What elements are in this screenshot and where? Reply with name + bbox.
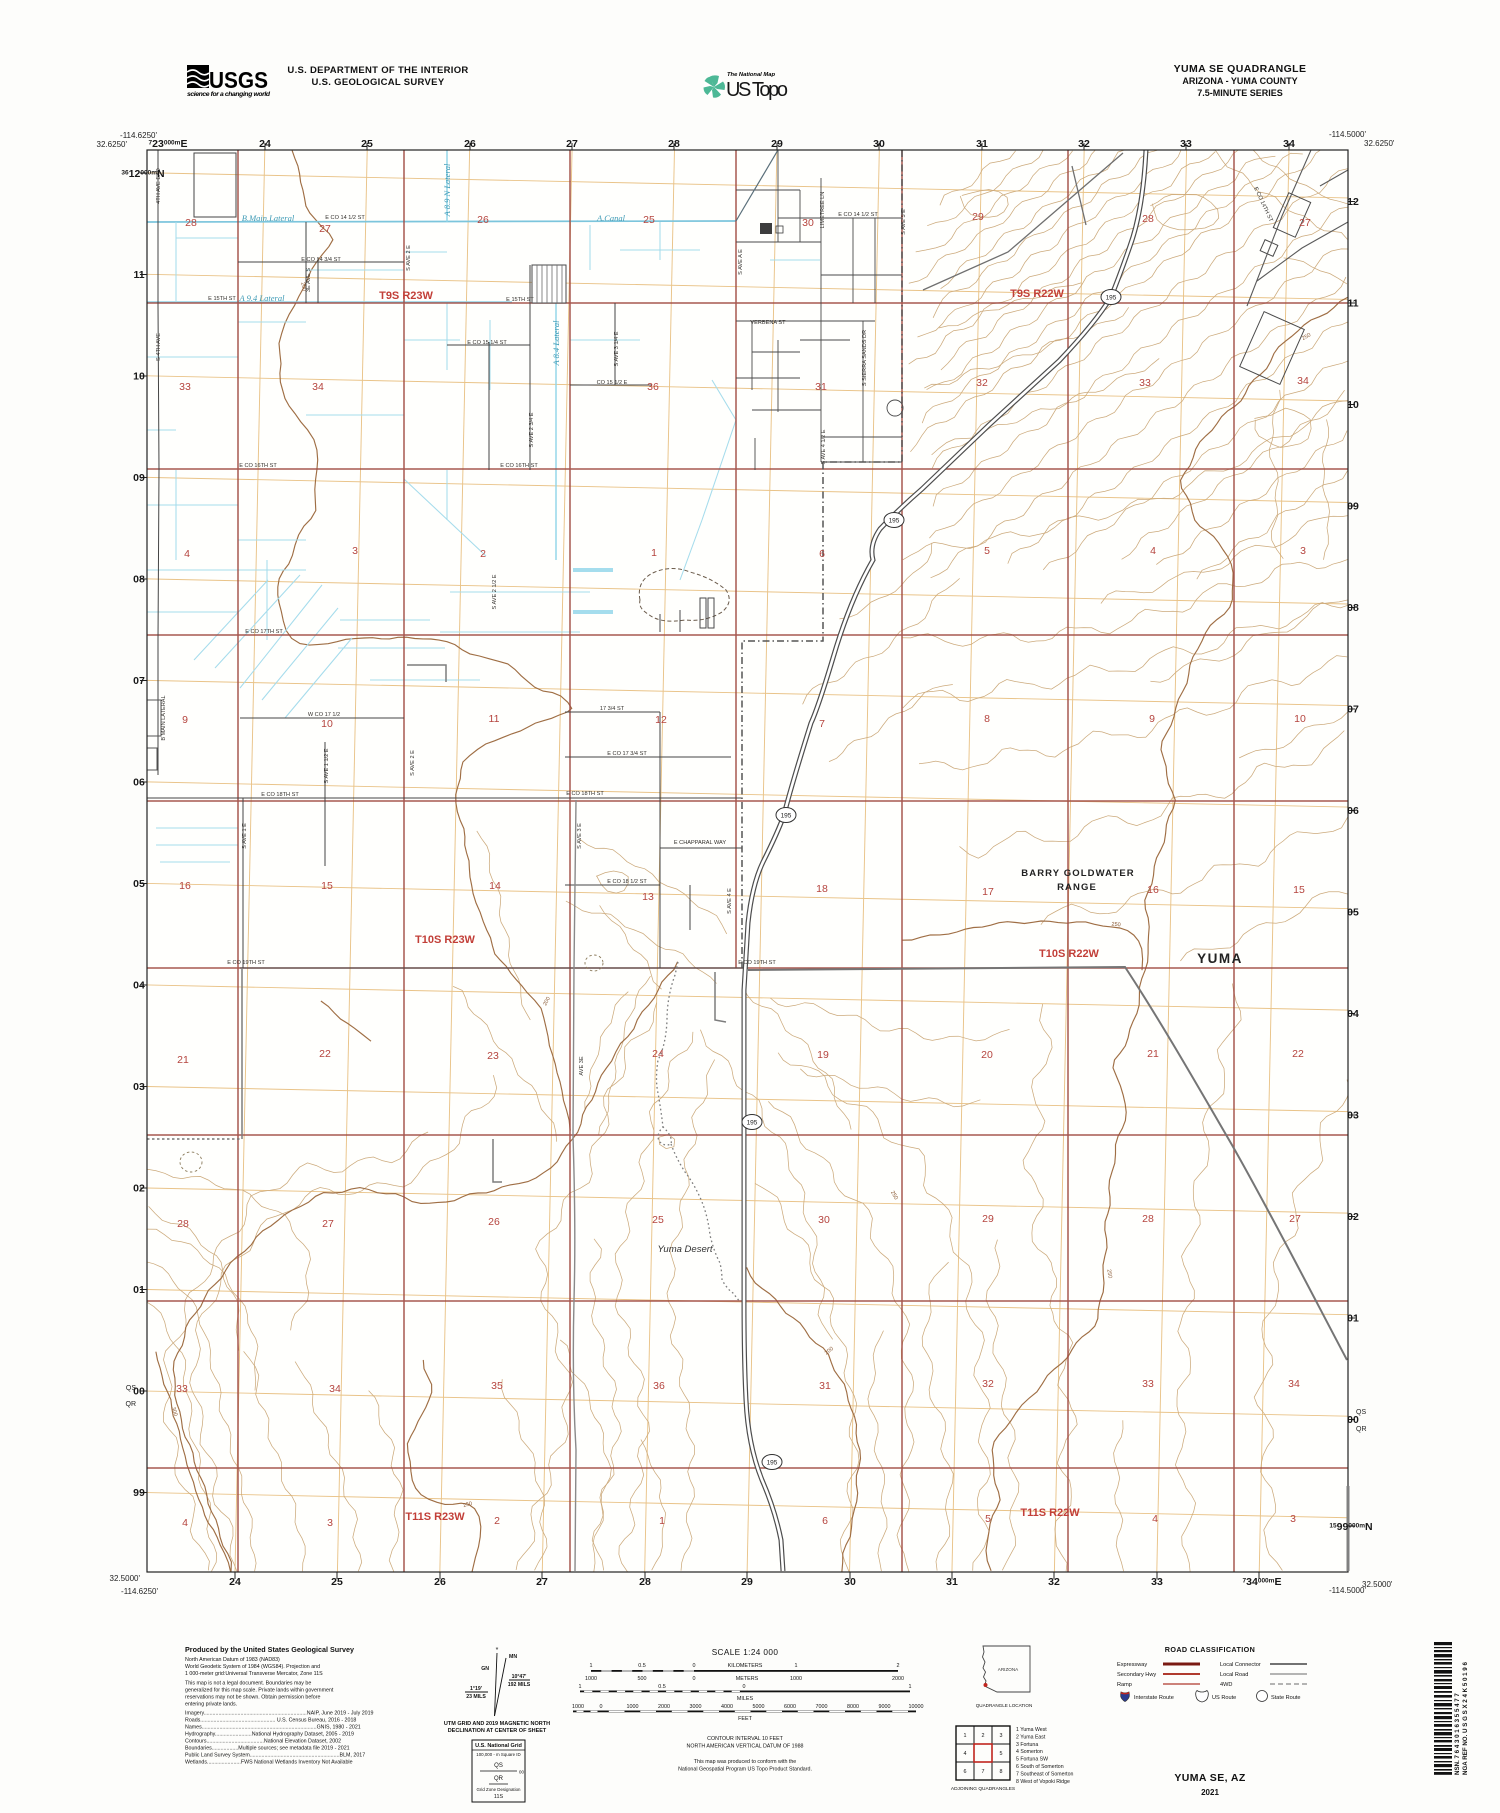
svg-text:34: 34 <box>1288 1378 1300 1390</box>
svg-text:08: 08 <box>133 574 145 586</box>
svg-text:16: 16 <box>1147 884 1159 896</box>
svg-text:0.5: 0.5 <box>638 1663 646 1669</box>
svg-text:Imagery.......................: Imagery.................................… <box>185 1711 374 1717</box>
svg-text:250: 250 <box>1105 1269 1112 1279</box>
svg-text:07: 07 <box>1347 704 1359 716</box>
svg-text:23: 23 <box>487 1050 499 1062</box>
svg-text:A 9.4 Lateral: A 9.4 Lateral <box>239 293 286 303</box>
svg-text:E CO 18 1/2 ST: E CO 18 1/2 ST <box>607 879 647 885</box>
svg-text:29: 29 <box>771 138 783 150</box>
svg-text:S AVE 4 1/2 E: S AVE 4 1/2 E <box>821 429 827 464</box>
svg-text:U.S. DEPARTMENT OF THE INTERIO: U.S. DEPARTMENT OF THE INTERIOR <box>287 65 468 76</box>
svg-text:S AVE 2 E: S AVE 2 E <box>410 750 416 776</box>
svg-text:RANGE: RANGE <box>1057 882 1097 893</box>
svg-text:Interstate Route: Interstate Route <box>1134 1695 1174 1701</box>
svg-text:USGS: USGS <box>209 67 268 93</box>
svg-text:28: 28 <box>185 217 197 229</box>
svg-text:195: 195 <box>747 1120 758 1127</box>
svg-text:E CO 15 1/4 ST: E CO 15 1/4 ST <box>467 340 507 346</box>
svg-text:30: 30 <box>873 138 885 150</box>
svg-text:4: 4 <box>182 1517 188 1529</box>
svg-text:ROAD CLASSIFICATION: ROAD CLASSIFICATION <box>1165 1645 1256 1654</box>
svg-text:E CO 17 3/4 ST: E CO 17 3/4 ST <box>607 751 647 757</box>
svg-text:13: 13 <box>642 891 654 903</box>
svg-text:4: 4 <box>964 1751 967 1757</box>
svg-text:12: 12 <box>1347 196 1359 208</box>
svg-text:09: 09 <box>133 472 145 484</box>
svg-text:A 8.4 Lateral: A 8.4 Lateral <box>551 320 561 367</box>
svg-text:8000: 8000 <box>847 1704 859 1710</box>
svg-text:2: 2 <box>982 1733 985 1739</box>
svg-text:500: 500 <box>638 1676 647 1682</box>
svg-text:9000: 9000 <box>879 1704 891 1710</box>
svg-text:36: 36 <box>647 381 659 393</box>
svg-text:E CO 18TH ST: E CO 18TH ST <box>261 792 299 798</box>
svg-text:26: 26 <box>477 214 489 226</box>
svg-text:27: 27 <box>1299 217 1311 229</box>
svg-text:34: 34 <box>312 381 324 393</box>
svg-text:192 MILS: 192 MILS <box>508 1682 531 1688</box>
svg-text:T11S R22W: T11S R22W <box>1020 1507 1080 1519</box>
svg-text:T9S R23W: T9S R23W <box>379 290 433 302</box>
svg-text:28: 28 <box>668 138 680 150</box>
svg-text:31: 31 <box>815 381 827 393</box>
svg-text:S AVE 2 E: S AVE 2 E <box>406 245 412 271</box>
svg-text:21: 21 <box>177 1054 189 1066</box>
svg-text:10000: 10000 <box>909 1704 924 1710</box>
svg-text:33: 33 <box>179 381 191 393</box>
svg-text:32.6250': 32.6250' <box>1364 139 1395 148</box>
svg-text:24: 24 <box>259 138 271 150</box>
svg-text:science for a changing world: science for a changing world <box>187 91 271 98</box>
svg-text:24: 24 <box>229 1576 241 1588</box>
svg-text:Expressway: Expressway <box>1117 1662 1147 1668</box>
svg-text:S AVE 5 E: S AVE 5 E <box>901 209 907 235</box>
svg-text:E 15TH ST: E 15TH ST <box>506 297 534 303</box>
svg-text:BARRY GOLDWATER: BARRY GOLDWATER <box>1021 868 1134 879</box>
svg-text:22: 22 <box>1292 1048 1304 1060</box>
svg-text:0: 0 <box>693 1663 696 1669</box>
svg-text:32: 32 <box>982 1378 994 1390</box>
svg-text:10°47': 10°47' <box>512 1674 527 1680</box>
svg-text:S AVE A E: S AVE A E <box>738 249 744 275</box>
svg-text:7 Southeast of Somerton: 7 Southeast of Somerton <box>1016 1771 1074 1777</box>
svg-text:21: 21 <box>1147 1048 1159 1060</box>
svg-text:31: 31 <box>946 1576 958 1588</box>
svg-text:Grid Zone Designation: Grid Zone Designation <box>477 1787 521 1792</box>
svg-text:VERBENA ST: VERBENA ST <box>750 320 786 326</box>
svg-text:T10S R22W: T10S R22W <box>1039 948 1100 960</box>
svg-text:07: 07 <box>133 675 145 687</box>
svg-text:195: 195 <box>781 813 792 820</box>
svg-text:E CO 14 1/2 ST: E CO 14 1/2 ST <box>838 212 878 218</box>
svg-text:8: 8 <box>984 713 990 725</box>
svg-text:100,000 - m Square ID: 100,000 - m Square ID <box>476 1752 520 1757</box>
svg-text:State Route: State Route <box>1271 1695 1301 1701</box>
svg-text:UTM GRID AND 2019 MAGNETIC NOR: UTM GRID AND 2019 MAGNETIC NORTH <box>444 1721 550 1727</box>
svg-text:1 000-meter grid:Universal Tra: 1 000-meter grid:Universal Transverse Me… <box>185 1671 323 1677</box>
svg-text:15: 15 <box>1293 884 1305 896</box>
svg-text:1 Yuma West: 1 Yuma West <box>1016 1727 1047 1733</box>
svg-text:0.5: 0.5 <box>658 1684 666 1690</box>
svg-text:B.Main.Lateral: B.Main.Lateral <box>242 213 295 223</box>
svg-text:E CO 19TH ST: E CO 19TH ST <box>738 960 776 966</box>
svg-text:AVE 3E: AVE 3E <box>579 1056 585 1075</box>
svg-text:04: 04 <box>1347 1008 1359 1020</box>
svg-text:25: 25 <box>652 1214 664 1226</box>
svg-text:4 Somerton: 4 Somerton <box>1016 1749 1043 1755</box>
svg-text:A.Canal: A.Canal <box>596 213 626 223</box>
svg-text:11S: 11S <box>494 1794 504 1800</box>
svg-text:3: 3 <box>352 545 358 557</box>
svg-text:FEET: FEET <box>738 1716 752 1722</box>
svg-text:T9S R22W: T9S R22W <box>1010 288 1064 300</box>
svg-text:9: 9 <box>182 714 188 726</box>
svg-text:Names.........................: Names...................................… <box>185 1725 361 1731</box>
svg-text:30: 30 <box>802 217 814 229</box>
svg-text:05: 05 <box>133 878 145 890</box>
svg-text:NORTH AMERICAN VERTICAL DATUM: NORTH AMERICAN VERTICAL DATUM OF 1988 <box>687 1744 804 1750</box>
svg-text:27: 27 <box>1289 1213 1301 1225</box>
svg-text:1: 1 <box>659 1515 665 1527</box>
svg-text:E CO 16TH ST: E CO 16TH ST <box>239 463 277 469</box>
svg-text:06: 06 <box>1347 805 1359 817</box>
svg-text:10: 10 <box>1294 713 1306 725</box>
svg-text:3 Fortuna: 3 Fortuna <box>1016 1742 1038 1748</box>
svg-text:1: 1 <box>909 1684 912 1690</box>
svg-text:29: 29 <box>982 1213 994 1225</box>
svg-text:27: 27 <box>536 1576 548 1588</box>
svg-text:2000: 2000 <box>892 1676 904 1682</box>
svg-text:CONTOUR INTERVAL 10 FEET: CONTOUR INTERVAL 10 FEET <box>707 1736 784 1742</box>
svg-text:24: 24 <box>652 1048 664 1060</box>
svg-text:6: 6 <box>964 1769 967 1775</box>
svg-text:-114.6250': -114.6250' <box>120 131 157 140</box>
svg-text:17: 17 <box>982 886 994 898</box>
svg-text:S 4TH AVE: S 4TH AVE <box>156 333 162 361</box>
svg-text:25: 25 <box>331 1576 343 1588</box>
svg-text:This map is not a legal docume: This map is not a legal document. Bounda… <box>185 1681 311 1687</box>
svg-text:28: 28 <box>1142 213 1154 225</box>
svg-text:29: 29 <box>972 211 984 223</box>
svg-text:S AVE 4 E: S AVE 4 E <box>727 888 733 914</box>
svg-text:QS: QS <box>1356 1409 1366 1416</box>
svg-text:4WD: 4WD <box>1220 1682 1232 1688</box>
svg-text:195: 195 <box>767 1460 778 1467</box>
svg-text:6: 6 <box>822 1515 828 1527</box>
svg-text:32: 32 <box>1078 138 1090 150</box>
svg-text:1000: 1000 <box>572 1704 584 1710</box>
svg-text:06: 06 <box>133 777 145 789</box>
svg-text:3: 3 <box>327 1517 333 1529</box>
svg-text:A 8.9 N Lateral: A 8.9 N Lateral <box>442 163 452 217</box>
svg-text:33: 33 <box>1142 1378 1154 1390</box>
svg-text:CO 15 1/2 E: CO 15 1/2 E <box>597 380 628 386</box>
svg-text:05: 05 <box>1347 907 1359 919</box>
svg-text:QS: QS <box>494 1763 503 1769</box>
svg-text:4: 4 <box>1150 545 1156 557</box>
svg-text:2: 2 <box>480 548 486 560</box>
svg-text:36: 36 <box>653 1380 665 1392</box>
svg-text:12: 12 <box>655 714 667 726</box>
svg-text:27: 27 <box>566 138 578 150</box>
svg-text:18: 18 <box>816 883 828 895</box>
svg-text:ADJOINING QUADRANGLES: ADJOINING QUADRANGLES <box>951 1786 1015 1792</box>
svg-text:Contours......................: Contours................................… <box>185 1739 341 1745</box>
svg-text:20: 20 <box>981 1049 993 1061</box>
svg-text:195: 195 <box>889 518 900 525</box>
svg-text:33: 33 <box>1180 138 1192 150</box>
svg-text:02: 02 <box>1347 1211 1359 1223</box>
svg-text:6 South of Somerton: 6 South of Somerton <box>1016 1764 1064 1770</box>
svg-text:ARIZONA: ARIZONA <box>998 1667 1019 1672</box>
svg-text:33: 33 <box>1139 377 1151 389</box>
svg-text:09: 09 <box>1347 501 1359 513</box>
svg-text:32.6250': 32.6250' <box>97 140 128 149</box>
svg-text:2000: 2000 <box>658 1704 670 1710</box>
svg-text:5000: 5000 <box>753 1704 765 1710</box>
svg-text:Yuma Desert: Yuma Desert <box>657 1244 712 1255</box>
svg-text:E CO 17TH ST: E CO 17TH ST <box>245 629 283 635</box>
svg-text:7000: 7000 <box>816 1704 828 1710</box>
svg-text:33: 33 <box>1151 1576 1163 1588</box>
svg-text:North American Datum of 1983 (: North American Datum of 1983 (NAD83) <box>185 1657 280 1663</box>
svg-text:E 15TH ST: E 15TH ST <box>208 296 236 302</box>
svg-text:Produced by the United States: Produced by the United States Geological… <box>185 1645 354 1654</box>
svg-text:KILOMETERS: KILOMETERS <box>728 1663 763 1669</box>
svg-text:U.S. National Grid: U.S. National Grid <box>475 1743 522 1749</box>
svg-text:Ramp: Ramp <box>1117 1682 1132 1688</box>
svg-text:10: 10 <box>133 371 145 383</box>
svg-text:The National Map: The National Map <box>727 72 775 78</box>
svg-text:6: 6 <box>819 548 825 560</box>
svg-text:14: 14 <box>489 880 501 892</box>
svg-text:Public Land Survey System..: Public Land Survey System...............… <box>185 1753 365 1759</box>
svg-text:YUMA: YUMA <box>1197 951 1243 966</box>
svg-text:MILES: MILES <box>737 1696 754 1702</box>
svg-text:2: 2 <box>494 1515 500 1527</box>
svg-text:32: 32 <box>1048 1576 1060 1588</box>
svg-text:3: 3 <box>1290 1513 1296 1525</box>
svg-text:Boundaries..................Mu: Boundaries..................Multiple sou… <box>185 1746 350 1752</box>
svg-text:YUMA SE, AZ: YUMA SE, AZ <box>1174 1772 1245 1784</box>
svg-text:10: 10 <box>1347 399 1359 411</box>
svg-text:LIMETREE LN: LIMETREE LN <box>820 192 826 229</box>
svg-text:0: 0 <box>743 1684 746 1690</box>
svg-text:16: 16 <box>179 880 191 892</box>
svg-text:-114.5000': -114.5000' <box>1329 130 1366 139</box>
svg-text:25: 25 <box>643 214 655 226</box>
svg-text:33: 33 <box>176 1383 188 1395</box>
svg-text:QR: QR <box>494 1776 504 1782</box>
svg-text:0: 0 <box>693 1676 696 1682</box>
svg-text:8 West of Vopoki Ridge: 8 West of Vopoki Ridge <box>1016 1779 1070 1785</box>
svg-text:22: 22 <box>319 1048 331 1060</box>
svg-text:29: 29 <box>741 1576 753 1588</box>
svg-text:NGA REF NO. U S G S X 2 4 K 5: NGA REF NO. U S G S X 2 4 K 5 0 1 9 6 <box>1462 1662 1469 1775</box>
svg-text:27: 27 <box>319 223 331 235</box>
svg-text:4000: 4000 <box>721 1704 733 1710</box>
svg-text:MN: MN <box>509 1654 517 1660</box>
svg-text:9: 9 <box>1149 713 1155 725</box>
svg-text:25: 25 <box>361 138 373 150</box>
svg-text:15: 15 <box>321 880 333 892</box>
svg-text:B MAIN LATERAL: B MAIN LATERAL <box>161 695 167 740</box>
svg-text:23 MILS: 23 MILS <box>466 1694 486 1700</box>
svg-text:19: 19 <box>817 1049 829 1061</box>
svg-text:1: 1 <box>590 1663 593 1669</box>
svg-text:E CHAPPARAL WAY: E CHAPPARAL WAY <box>674 840 726 846</box>
svg-text:NSN. 7 6 4 3 0 1 6 3 5 5 4 7: NSN. 7 6 4 3 0 1 6 3 5 5 4 7 7 <box>1454 1693 1461 1775</box>
svg-text:-114.5000': -114.5000' <box>1329 1586 1366 1595</box>
svg-text:generalized for this map scale: generalized for this map scale. Private … <box>185 1688 334 1694</box>
svg-text:ARIZONA - YUMA COUNTY: ARIZONA - YUMA COUNTY <box>1182 76 1297 86</box>
svg-text:03: 03 <box>133 1081 145 1093</box>
svg-text:E CO 18TH ST: E CO 18TH ST <box>566 791 604 797</box>
svg-text:17 3/4 ST: 17 3/4 ST <box>600 706 625 712</box>
svg-text:S AVE 1 1/2 E: S AVE 1 1/2 E <box>324 748 330 783</box>
svg-text:entering private lands.: entering private lands. <box>185 1702 237 1708</box>
svg-text:8: 8 <box>1000 1769 1003 1775</box>
svg-text:-114.6250': -114.6250' <box>121 1587 158 1596</box>
svg-text:QUADRANGLE LOCATION: QUADRANGLE LOCATION <box>976 1703 1033 1708</box>
svg-text:Roads.........................: Roads...................................… <box>185 1718 356 1724</box>
svg-text:T10S R23W: T10S R23W <box>415 934 476 946</box>
svg-text:30: 30 <box>818 1214 830 1226</box>
svg-text:E CO 19TH ST: E CO 19TH ST <box>227 960 265 966</box>
svg-text:S AVE 2 3/4 E: S AVE 2 3/4 E <box>529 412 535 447</box>
svg-text:195: 195 <box>1106 295 1117 302</box>
svg-text:11: 11 <box>133 269 144 281</box>
svg-text:26: 26 <box>464 138 476 150</box>
svg-text:11: 11 <box>489 713 500 725</box>
svg-text:US Topo: US Topo <box>726 79 788 101</box>
svg-text:10: 10 <box>321 718 333 730</box>
svg-text:02: 02 <box>133 1183 145 1195</box>
svg-text:34: 34 <box>1297 375 1309 387</box>
svg-text:This map was produced to confo: This map was produced to conform with th… <box>694 1759 797 1765</box>
svg-text:1: 1 <box>795 1663 798 1669</box>
svg-text:1: 1 <box>579 1684 582 1690</box>
svg-text:26: 26 <box>488 1216 500 1228</box>
svg-text:3000: 3000 <box>690 1704 702 1710</box>
svg-text:30: 30 <box>844 1576 856 1588</box>
svg-text:S AVE 2 1/2 E: S AVE 2 1/2 E <box>492 574 498 609</box>
svg-text:US Route: US Route <box>1212 1695 1236 1701</box>
svg-text:QS: QS <box>126 1385 136 1392</box>
svg-text:QR: QR <box>126 1401 137 1408</box>
svg-text:34: 34 <box>1283 138 1295 150</box>
svg-text:S SIERRA SANDS DR: S SIERRA SANDS DR <box>862 330 868 386</box>
svg-text:Local Road: Local Road <box>1220 1672 1248 1678</box>
svg-text:Wetlands......................: Wetlands.......................FWS Natio… <box>185 1760 353 1766</box>
svg-text:1: 1 <box>651 547 657 559</box>
svg-text:01: 01 <box>133 1284 145 1296</box>
svg-text:4: 4 <box>1152 1513 1158 1525</box>
svg-text:03: 03 <box>1347 1110 1359 1122</box>
svg-text:S AVE 1 E: S AVE 1 E <box>242 823 248 849</box>
svg-text:YUMA SE QUADRANGLE: YUMA SE QUADRANGLE <box>1174 63 1307 75</box>
svg-text:5: 5 <box>985 1513 991 1525</box>
svg-text:27: 27 <box>322 1218 334 1230</box>
svg-text:*: * <box>496 1647 499 1654</box>
svg-text:Hydrography...................: Hydrography.........................Nati… <box>185 1732 354 1738</box>
svg-text:2 Yuma East: 2 Yuma East <box>1016 1734 1046 1740</box>
svg-text:7: 7 <box>819 718 825 730</box>
svg-text:08: 08 <box>1347 602 1359 614</box>
svg-text:5: 5 <box>1000 1751 1003 1757</box>
svg-text:0: 0 <box>600 1704 603 1710</box>
svg-text:METERS: METERS <box>736 1676 759 1682</box>
svg-text:5 Fortuna SW: 5 Fortuna SW <box>1016 1757 1048 1763</box>
svg-text:28: 28 <box>177 1218 189 1230</box>
svg-text:28: 28 <box>639 1576 651 1588</box>
svg-text:QR: QR <box>1356 1426 1367 1433</box>
svg-text:E CO 14 3/4 ST: E CO 14 3/4 ST <box>301 257 341 263</box>
svg-text:34: 34 <box>329 1383 341 1395</box>
svg-text:32: 32 <box>976 377 988 389</box>
svg-text:1000: 1000 <box>790 1676 802 1682</box>
svg-text:1000: 1000 <box>585 1676 597 1682</box>
svg-text:31: 31 <box>976 138 988 150</box>
svg-text:35: 35 <box>491 1380 503 1392</box>
svg-text:3: 3 <box>1300 545 1306 557</box>
svg-text:1°19': 1°19' <box>470 1686 482 1692</box>
svg-text:E CO 14 1/2 ST: E CO 14 1/2 ST <box>325 215 365 221</box>
svg-text:7.5-MINUTE SERIES: 7.5-MINUTE SERIES <box>1197 88 1283 98</box>
svg-text:U.S. GEOLOGICAL SURVEY: U.S. GEOLOGICAL SURVEY <box>312 77 445 88</box>
svg-text:S AVE 3 E: S AVE 3 E <box>577 823 583 849</box>
svg-text:1000: 1000 <box>627 1704 639 1710</box>
svg-text:6000: 6000 <box>784 1704 796 1710</box>
svg-text:3E AVE S: 3E AVE S <box>306 268 312 292</box>
svg-text:31: 31 <box>819 1380 831 1392</box>
svg-text:S AVE 3 1/4 E: S AVE 3 1/4 E <box>614 331 620 366</box>
svg-text:2: 2 <box>897 1663 900 1669</box>
svg-text:28: 28 <box>1142 1213 1154 1225</box>
svg-text:2021: 2021 <box>1201 1788 1219 1797</box>
svg-text:1: 1 <box>964 1733 967 1739</box>
svg-text:11: 11 <box>1347 298 1358 310</box>
svg-text:5: 5 <box>984 545 990 557</box>
svg-text:Secondary Hwy: Secondary Hwy <box>1117 1672 1156 1678</box>
svg-text:GN: GN <box>481 1666 489 1672</box>
svg-text:Local Connector: Local Connector <box>1220 1662 1261 1668</box>
svg-text:E CO 16TH ST: E CO 16TH ST <box>500 463 538 469</box>
svg-text:32.5000': 32.5000' <box>1362 1580 1393 1589</box>
svg-text:99: 99 <box>133 1487 145 1499</box>
svg-text:World Geodetic System of 1984: World Geodetic System of 1984 (WGS84). P… <box>185 1664 320 1670</box>
svg-text:7: 7 <box>982 1769 985 1775</box>
svg-text:26: 26 <box>434 1576 446 1588</box>
svg-text:National Geospatial Program US: National Geospatial Program US Topo Prod… <box>678 1767 812 1773</box>
svg-text:3: 3 <box>1000 1733 1003 1739</box>
svg-text:250: 250 <box>1111 922 1121 929</box>
svg-text:DECLINATION AT CENTER OF SHEET: DECLINATION AT CENTER OF SHEET <box>448 1728 547 1734</box>
svg-text:01: 01 <box>1347 1313 1359 1325</box>
svg-text:04: 04 <box>133 980 145 992</box>
svg-text:00: 00 <box>519 1770 524 1775</box>
svg-text:reservations may not be shown.: reservations may not be shown. Obtain pe… <box>185 1695 320 1701</box>
svg-text:32.5000': 32.5000' <box>110 1574 141 1583</box>
svg-text:T11S R23W: T11S R23W <box>405 1511 465 1523</box>
svg-text:SCALE 1:24 000: SCALE 1:24 000 <box>712 1648 779 1657</box>
svg-text:4: 4 <box>184 548 190 560</box>
